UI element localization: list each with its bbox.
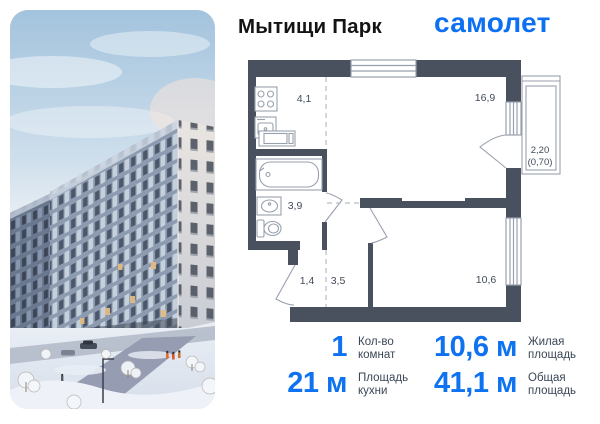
corridor-area-label: 3,5: [331, 275, 346, 287]
window-bedroom: [506, 218, 521, 285]
bedroom-door: [370, 208, 387, 243]
stat-rooms-label: Кол-вокомнат: [358, 333, 395, 361]
washbasin-icon: [257, 197, 281, 215]
stat-kitchen-area-label: Площадькухни: [358, 369, 408, 397]
bedroom-area-label: 10,6: [476, 274, 497, 286]
zone-dividers: [326, 77, 360, 307]
stat-total-area-value: 41,1 м: [410, 369, 517, 397]
balcony-area-reduced-label: (0,70): [528, 157, 553, 168]
bathroom-door: [325, 193, 342, 222]
window-top: [351, 60, 416, 77]
hall-area-label: 1,4: [300, 275, 315, 287]
stat-rooms: 1 Кол-вокомнат: [240, 333, 395, 361]
stat-kitchen-area-value: 21 м: [240, 369, 347, 397]
bathtub-icon: [256, 159, 322, 190]
entrance-door: [276, 265, 295, 305]
stat-living-area: 10,6 м Жилаяплощадь: [410, 333, 576, 361]
window-living: [506, 102, 521, 135]
living-area-label: 16,9: [475, 92, 496, 104]
stat-total-area: 41,1 м Общаяплощадь: [410, 369, 576, 397]
toilet-icon: [257, 220, 281, 237]
stove-icon: [255, 87, 277, 111]
stat-living-area-value: 10,6 м: [410, 333, 517, 361]
stat-kitchen-area: 21 м Площадькухни: [240, 369, 408, 397]
building-photo-illustration: [10, 10, 215, 409]
page-title: Мытищи Парк: [238, 15, 382, 39]
balcony-area-label: 2,20: [531, 145, 550, 156]
counter-icon: [259, 131, 295, 146]
samolet-logo: самолет: [434, 7, 551, 39]
balcony-door: [480, 135, 506, 168]
bathroom-area-label: 3,9: [288, 200, 303, 212]
stat-total-area-label: Общаяплощадь: [528, 369, 576, 397]
kitchen-area-label: 4,1: [297, 93, 312, 105]
stat-living-area-label: Жилаяплощадь: [528, 333, 576, 361]
floor-plan: 4,1 16,9 3,9 1,4 3,5 10,6 2,20 (0,70): [243, 57, 563, 323]
building-photo: [10, 10, 215, 409]
stat-rooms-value: 1: [240, 333, 347, 361]
